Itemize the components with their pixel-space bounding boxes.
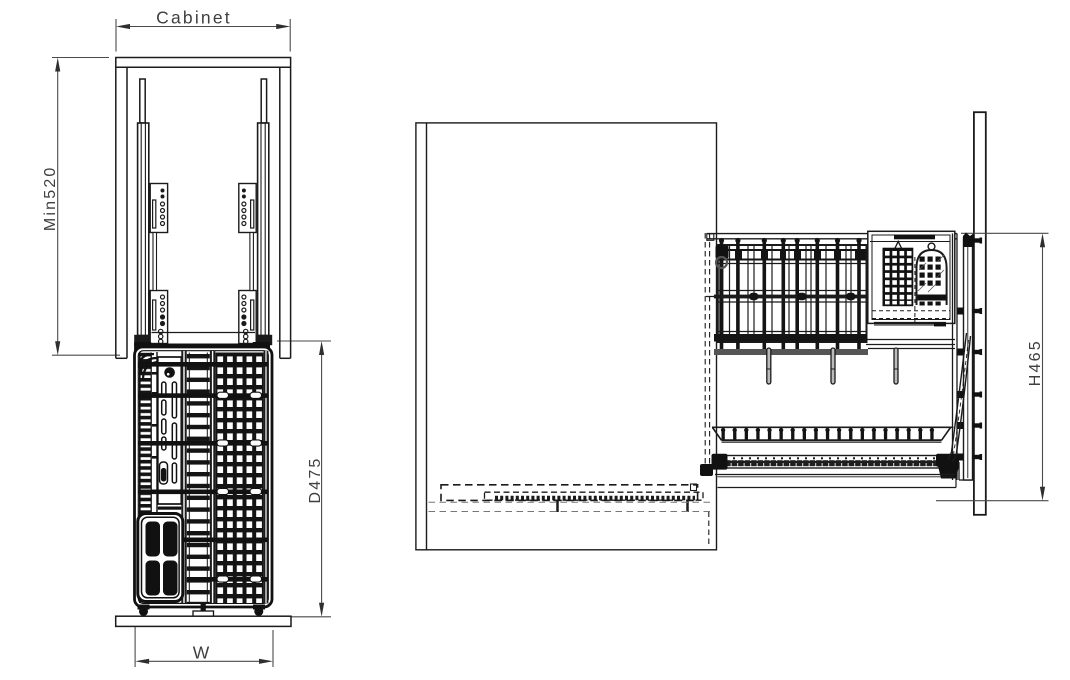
svg-text:D475: D475 [307,456,324,503]
svg-text:W: W [193,643,211,663]
svg-text:H465: H465 [1027,339,1044,386]
svg-text:Cabinet: Cabinet [156,8,232,28]
svg-text:Min520: Min520 [42,165,59,231]
